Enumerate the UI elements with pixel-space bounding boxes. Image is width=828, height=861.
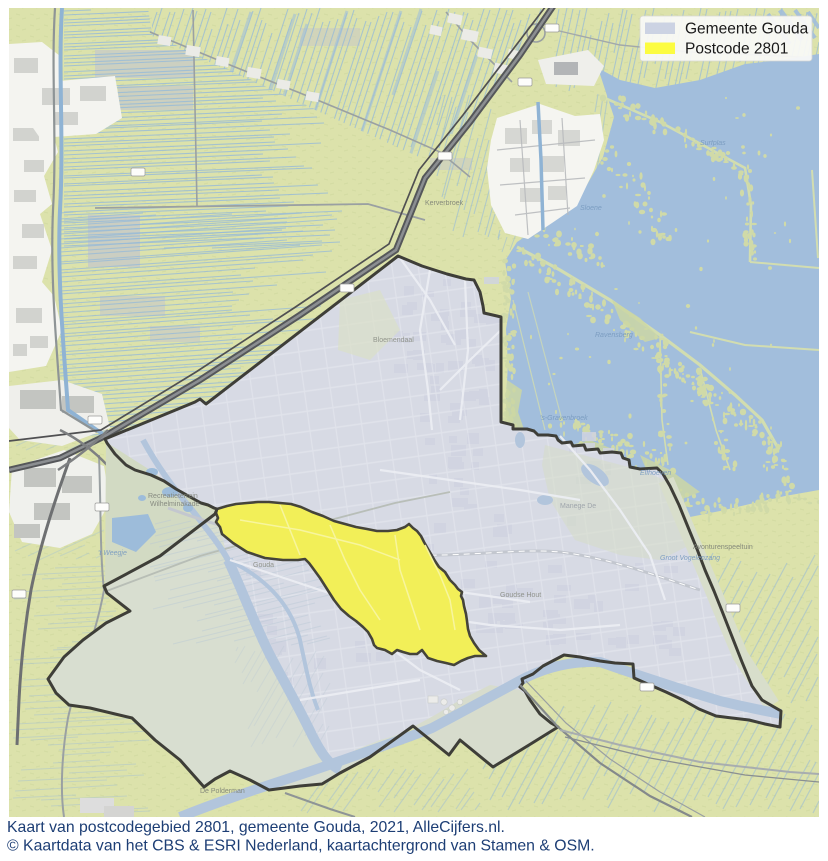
svg-text:Gemeente Gouda: Gemeente Gouda <box>685 21 809 38</box>
svg-text:Elfhoeven: Elfhoeven <box>640 470 671 477</box>
svg-text:© Kaartdata van het CBS & ESRI: © Kaartdata van het CBS & ESRI Nederland… <box>7 838 595 855</box>
svg-text:De Polderman: De Polderman <box>200 788 245 795</box>
svg-text:Bloemendaal: Bloemendaal <box>373 337 414 344</box>
svg-text:Manege De: Manege De <box>560 503 596 510</box>
svg-text:Avonturenspeeltuin: Avonturenspeeltuin <box>693 544 753 551</box>
svg-text:Goudse Hout: Goudse Hout <box>500 592 541 599</box>
svg-text:'s-Gravenbroek: 's-Gravenbroek <box>540 415 588 422</box>
svg-text:Groot Vogelenzang: Groot Vogelenzang <box>660 555 720 562</box>
svg-text:Kerverbroek: Kerverbroek <box>425 200 464 207</box>
svg-text:Recreatieterrein: Recreatieterrein <box>148 493 198 500</box>
svg-text:Wilhelminakade: Wilhelminakade <box>150 501 200 508</box>
svg-text:Kaart van postcodegebied 2801,: Kaart van postcodegebied 2801, gemeente … <box>7 819 505 836</box>
svg-text:Gouda: Gouda <box>253 562 274 569</box>
svg-text:Postcode 2801: Postcode 2801 <box>685 41 788 58</box>
svg-text:Ravensberg: Ravensberg <box>595 332 633 339</box>
svg-text:Surfplas: Surfplas <box>700 140 726 147</box>
svg-text:Sloene: Sloene <box>580 205 602 212</box>
svg-text:'t Weegje: 't Weegje <box>98 550 127 557</box>
